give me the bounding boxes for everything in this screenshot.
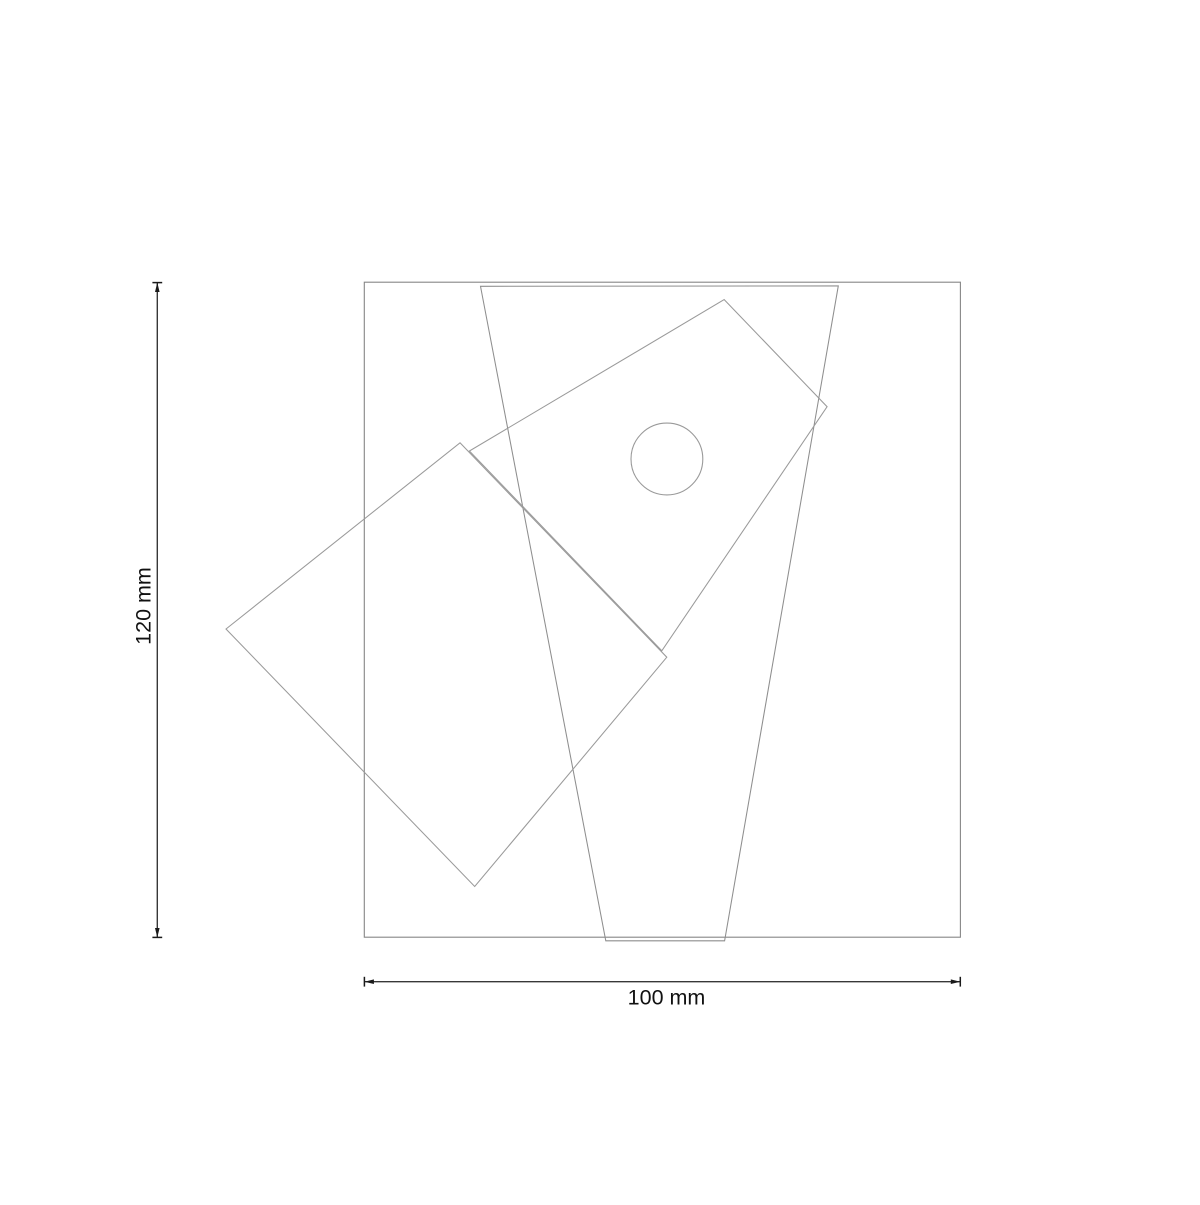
svg-text:120 mm: 120 mm (131, 567, 155, 645)
svg-text:100 mm: 100 mm (628, 985, 706, 1009)
